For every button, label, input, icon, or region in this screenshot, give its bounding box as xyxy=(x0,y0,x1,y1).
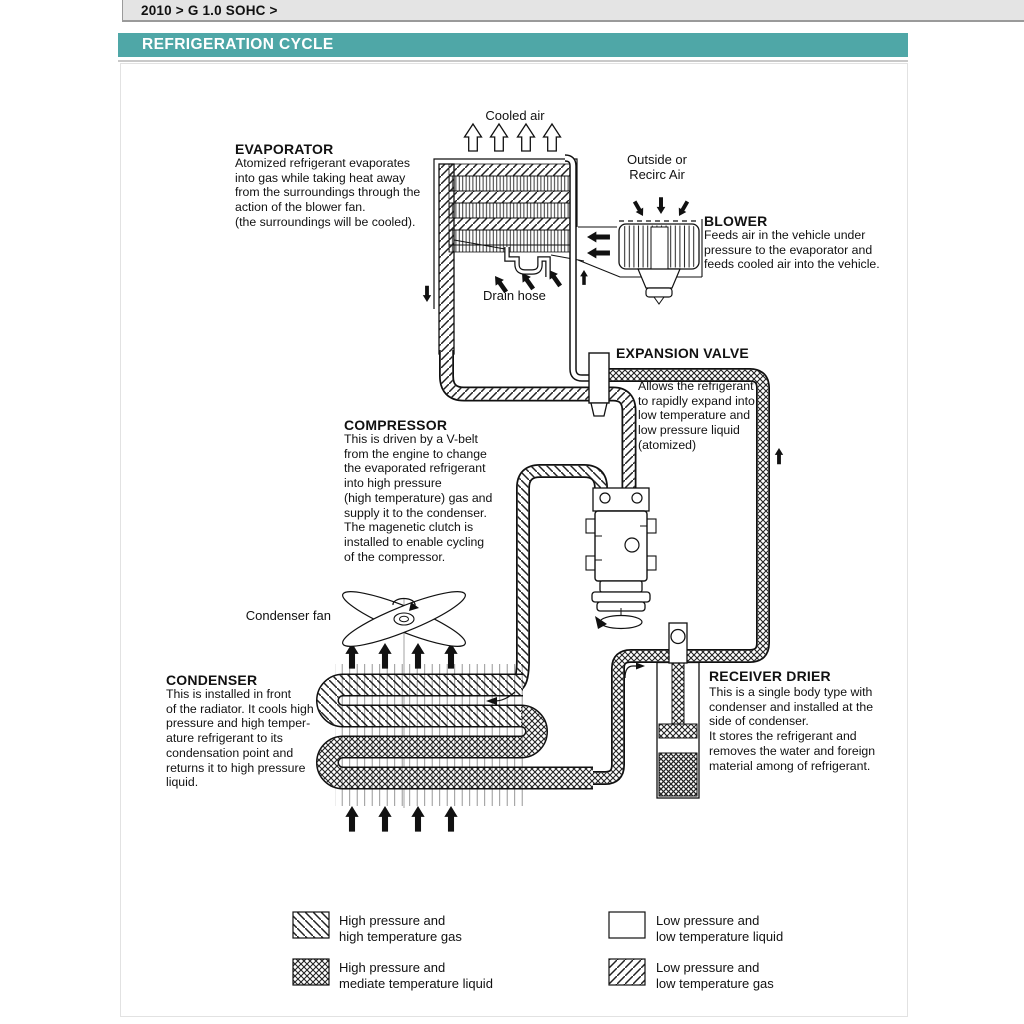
receiver-drier-description: This is a single body type with condense… xyxy=(709,685,889,773)
compressor-description: This is driven by a V-belt from the engi… xyxy=(344,432,509,564)
compressor-unit xyxy=(586,488,656,629)
legend-label-hp-liquid: High pressure and mediate temperature li… xyxy=(339,960,493,992)
condenser-fins xyxy=(335,664,527,806)
breadcrumb[interactable]: 2010 > G 1.0 SOHC > xyxy=(123,3,278,18)
legend-swatch-lp-liquid xyxy=(609,912,645,938)
outside-air-arrows xyxy=(631,197,691,218)
pipe-gas-high-pressure xyxy=(517,471,601,685)
compressor-pulley xyxy=(592,581,650,611)
downflow-arrow xyxy=(423,286,431,302)
blower-funnel xyxy=(638,269,680,288)
outside-air-label: Outside or Recirc Air xyxy=(615,152,699,182)
diagram-canvas: Cooled air Outside or Recirc Air Drain h… xyxy=(120,63,908,1017)
expansion-valve-heading: EXPANSION VALVE xyxy=(616,345,749,361)
legend-swatch-lp-gas xyxy=(609,959,645,985)
evaporator-core xyxy=(449,164,576,252)
legend-swatch-hp-liquid xyxy=(293,959,329,985)
evaporator-heading: EVAPORATOR xyxy=(235,141,333,157)
page: 2010 > G 1.0 SOHC > REFRIGERATION CYCLE xyxy=(0,0,1024,1024)
legend-label-lp-gas: Low pressure and low temperature gas xyxy=(656,960,774,992)
cooled-air-arrows xyxy=(465,124,561,151)
drain-hose-label: Drain hose xyxy=(483,288,546,303)
title-divider xyxy=(118,60,908,62)
blower-to-evaporator-arrows xyxy=(587,231,610,258)
cooled-air-label: Cooled air xyxy=(469,108,561,123)
compressor-heading: COMPRESSOR xyxy=(344,417,447,433)
condenser-heading: CONDENSER xyxy=(166,672,257,688)
blower-description: Feeds air in the vehicle under pressure … xyxy=(704,228,899,272)
condenser-coil xyxy=(328,664,594,806)
legend-label-hp-gas: High pressure and high temperature gas xyxy=(339,913,462,945)
evaporator-description: Atomized refrigerant evaporates into gas… xyxy=(235,156,445,230)
upflow-arrow xyxy=(580,270,588,285)
sight-glass xyxy=(671,630,685,644)
expansion-valve-description: Allows the refrigerant to rapidly expand… xyxy=(638,379,760,453)
condenser-fan-label: Condenser fan xyxy=(241,608,331,623)
page-title: REFRIGERATION CYCLE xyxy=(118,36,334,54)
condenser-description: This is installed in front of the radiat… xyxy=(166,687,328,790)
section-title-bar: REFRIGERATION CYCLE xyxy=(118,33,908,57)
legend-label-lp-liquid: Low pressure and low temperature liquid xyxy=(656,913,783,945)
receiver-drier-heading: RECEIVER DRIER xyxy=(709,668,831,684)
blower-unit xyxy=(578,197,702,304)
legend-swatch-hp-gas xyxy=(293,912,329,938)
breadcrumb-bar: 2010 > G 1.0 SOHC > xyxy=(122,0,1024,22)
expansion-valve-device xyxy=(589,353,609,416)
blower-heading: BLOWER xyxy=(704,213,767,229)
